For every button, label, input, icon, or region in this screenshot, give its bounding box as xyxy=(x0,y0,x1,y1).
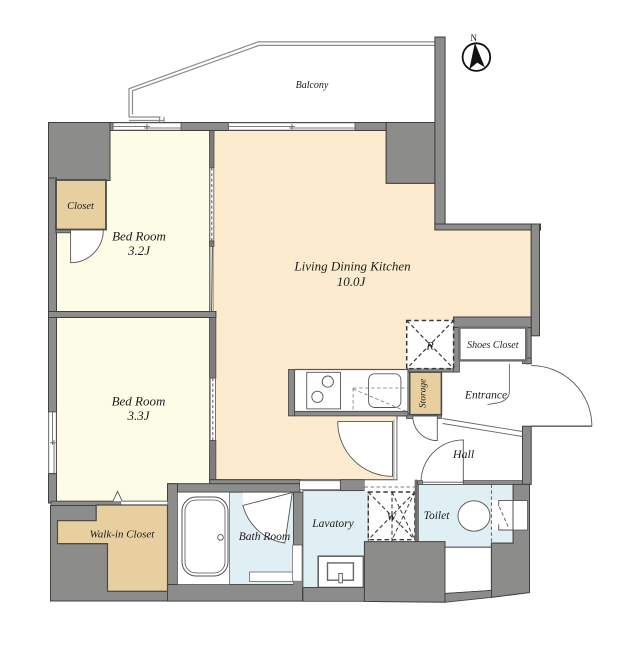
svg-text:Lavatory: Lavatory xyxy=(311,518,354,530)
svg-text:3.3J: 3.3J xyxy=(126,408,150,423)
svg-text:W: W xyxy=(387,512,397,524)
svg-text:Toilet: Toilet xyxy=(424,510,451,522)
svg-text:Living Dining Kitchen: Living Dining Kitchen xyxy=(293,259,410,274)
svg-text:Entrance: Entrance xyxy=(464,390,507,402)
svg-text:10.0J: 10.0J xyxy=(337,274,367,289)
svg-text:N: N xyxy=(471,33,478,43)
svg-text:Bath Room: Bath Room xyxy=(239,531,290,543)
svg-text:3.2J: 3.2J xyxy=(127,243,151,258)
svg-text:Shoes Closet: Shoes Closet xyxy=(467,340,519,351)
svg-text:Walk-in Closet: Walk-in Closet xyxy=(90,529,156,541)
svg-text:R: R xyxy=(425,339,434,353)
svg-text:Bed Room: Bed Room xyxy=(112,229,166,244)
svg-text:Storage: Storage xyxy=(419,379,429,409)
svg-text:Bed Room: Bed Room xyxy=(112,394,166,409)
svg-text:Balcony: Balcony xyxy=(296,80,329,91)
svg-text:Closet: Closet xyxy=(67,201,95,212)
svg-text:Hall: Hall xyxy=(452,447,475,461)
